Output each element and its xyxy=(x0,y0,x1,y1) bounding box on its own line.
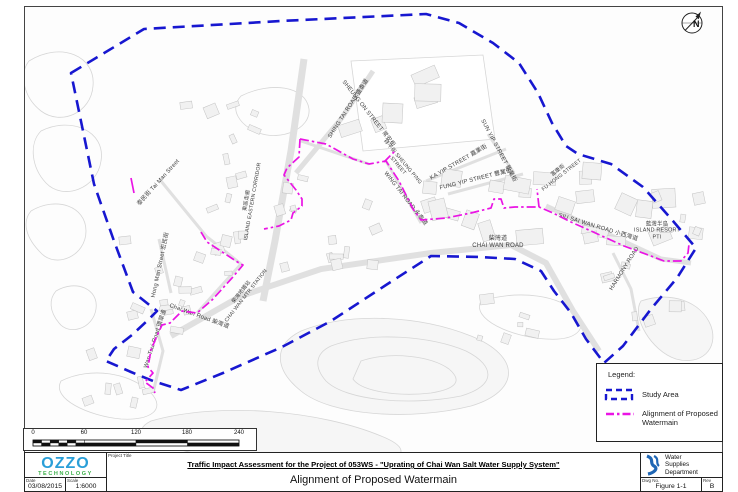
department-cell: Water Supplies Department Dwg No. Figure… xyxy=(640,453,722,491)
watermain-alignment xyxy=(300,139,689,261)
rev-value: B xyxy=(702,483,722,490)
scalebar-segment xyxy=(136,443,188,446)
watermain-alignment-spur xyxy=(384,151,395,162)
legend-label: Study Area xyxy=(642,388,679,399)
watermain-alignment-spur xyxy=(537,189,539,207)
north-arrow: N xyxy=(676,7,708,39)
dwg-no-value: Figure 1-1 xyxy=(641,483,701,490)
drawing-sheet: SHING TAI ROAD 盛泰道SHEUNG ON STREET 常安街祥平… xyxy=(0,0,738,492)
scalebar-segment xyxy=(42,443,51,446)
scalebar-segment xyxy=(136,440,188,443)
wsd-logo-icon xyxy=(641,454,665,476)
department-logo-row: Water Supplies Department xyxy=(641,453,722,477)
scale-bar-graphic xyxy=(24,429,256,450)
scalebar-segment xyxy=(67,440,76,443)
date-scale-row: Date 03/08/2015 Scale 1:6000 xyxy=(25,477,106,491)
scale-cell: Scale 1:6000 xyxy=(66,478,106,491)
scale-bar: 0 60 120 180 240 xyxy=(23,428,257,451)
title-block: OZZO TECHNOLOGY Date 03/08/2015 Scale 1:… xyxy=(24,452,723,492)
scalebar-segment xyxy=(67,443,76,446)
project-title-cell: Project Title Traffic Impact Assessment … xyxy=(107,453,640,491)
scale-value: 1:6000 xyxy=(66,483,106,490)
scalebar-segment xyxy=(59,443,68,446)
scalebar-segment xyxy=(76,443,85,446)
legend-item-study-area: Study Area xyxy=(604,388,679,402)
rev-cell: Rev B xyxy=(702,478,722,491)
scalebar-segment xyxy=(85,440,137,443)
legend-label: Alignment of Proposed Watermain xyxy=(642,407,722,428)
drawing-subtitle: Alignment of Proposed Watermain xyxy=(107,474,640,486)
scalebar-segment xyxy=(76,440,85,443)
watermain-symbol-icon xyxy=(604,407,636,421)
watermain-alignment-branch xyxy=(264,139,302,229)
legend-heading: Legend: xyxy=(608,370,635,379)
watermain-alignment-branch xyxy=(145,232,243,393)
scalebar-segment xyxy=(50,443,59,446)
project-title-label: Project Title xyxy=(108,453,132,458)
scalebar-segment xyxy=(188,443,240,446)
scalebar-segment xyxy=(33,440,42,443)
legend-box: Legend: Study Area Alignment of Proposed… xyxy=(596,363,723,442)
scalebar-segment xyxy=(42,440,51,443)
dwg-no-cell: Dwg No. Figure 1-1 xyxy=(641,478,702,491)
date-value: 03/08/2015 xyxy=(25,483,65,490)
legend-item-watermain: Alignment of Proposed Watermain xyxy=(604,407,722,428)
scalebar-segment xyxy=(85,443,137,446)
date-cell: Date 03/08/2015 xyxy=(25,478,66,491)
drawing-title: Traffic Impact Assessment for the Projec… xyxy=(107,460,640,469)
consultant-logo-cell: OZZO TECHNOLOGY Date 03/08/2015 Scale 1:… xyxy=(25,453,107,491)
study-area-boundary xyxy=(71,14,696,390)
north-label: N xyxy=(693,19,700,29)
study-area-symbol-icon xyxy=(604,388,636,402)
scalebar-segment xyxy=(59,440,68,443)
scalebar-segment xyxy=(50,440,59,443)
scalebar-segment xyxy=(33,443,42,446)
department-name: Water Supplies Department xyxy=(665,454,698,476)
scalebar-segment xyxy=(188,440,240,443)
dwg-rev-row: Dwg No. Figure 1-1 Rev B xyxy=(641,477,722,491)
watermain-alignment-tick xyxy=(131,178,134,193)
